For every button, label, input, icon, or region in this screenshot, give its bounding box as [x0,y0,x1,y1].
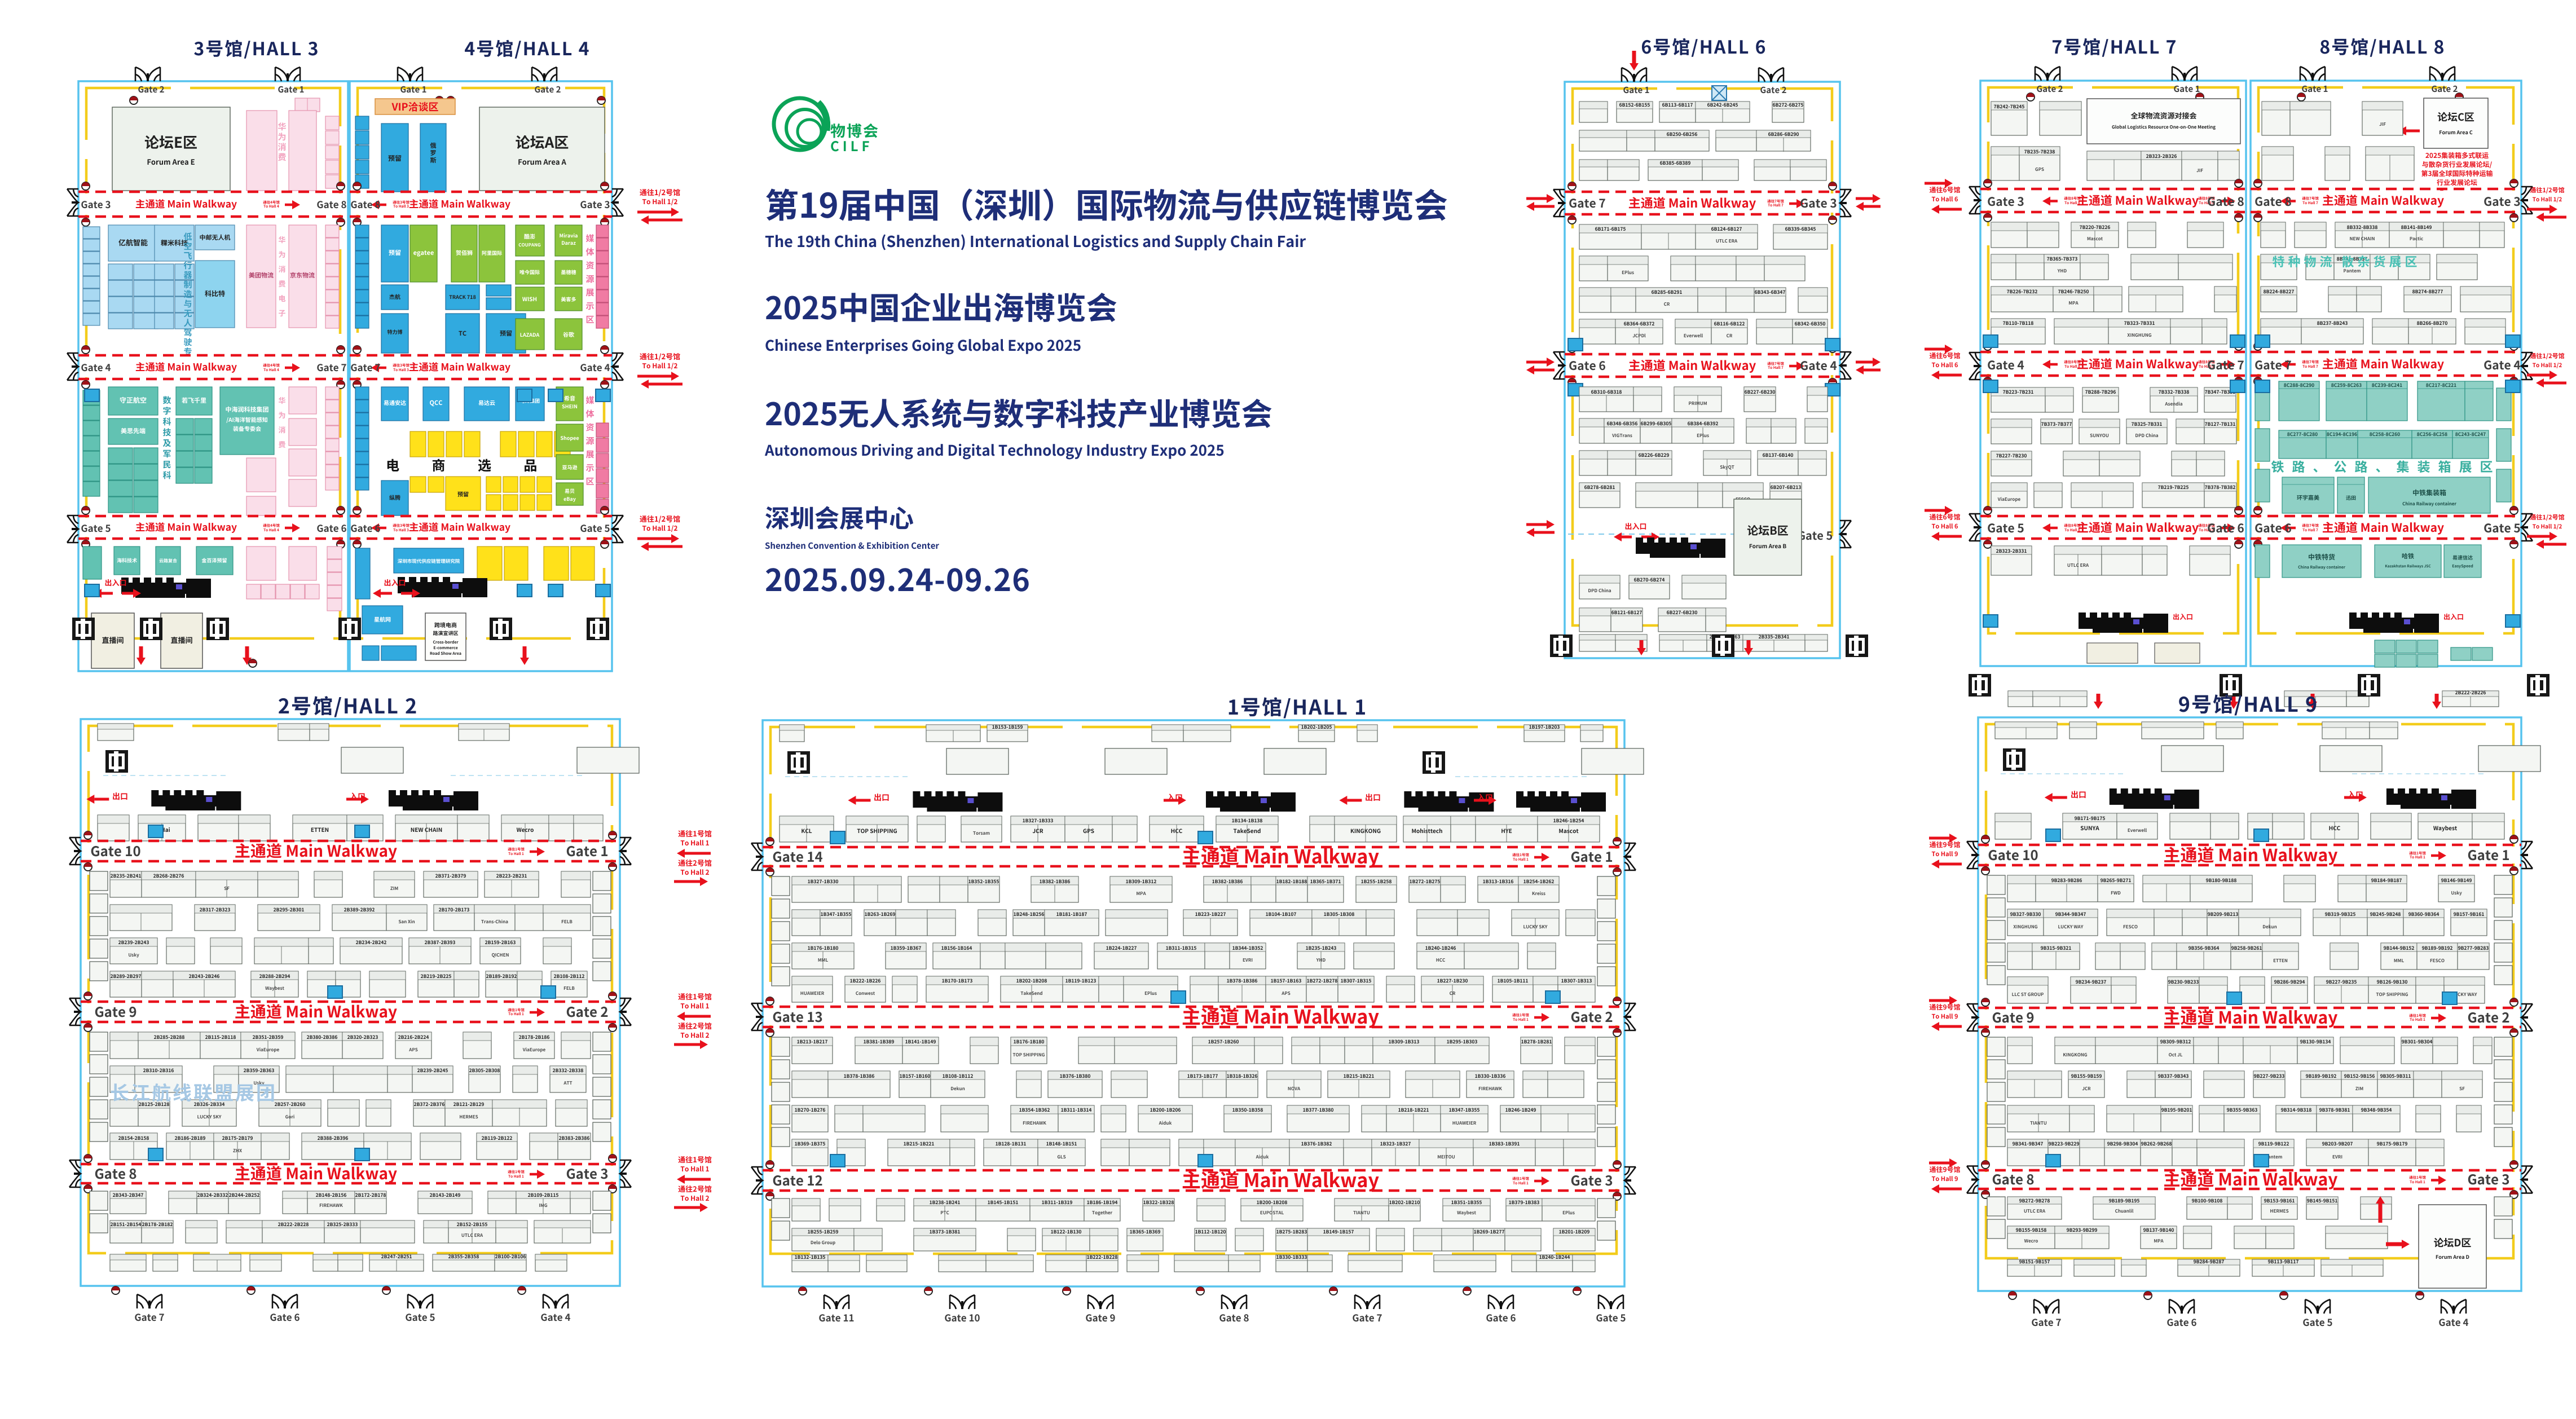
svg-text:论坛D区: 论坛D区 [2434,1235,2472,1250]
svg-text:出入口: 出入口 [1624,521,1646,531]
svg-text:TOP SHIPPING: TOP SHIPPING [1012,1052,1045,1058]
svg-text:6B121-6B127: 6B121-6B127 [1611,609,1643,616]
svg-text:1B330-1B333: 1B330-1B333 [1276,1254,1307,1261]
svg-text:2B151-2B154: 2B151-2B154 [111,1221,142,1228]
svg-text:与散杂货行业发展论坛/: 与散杂货行业发展论坛/ [2422,160,2493,169]
svg-text:7B325-7B331: 7B325-7B331 [2132,421,2163,428]
svg-text:出入口: 出入口 [2173,612,2193,622]
svg-text:1B197-1B203: 1B197-1B203 [1529,724,1560,730]
svg-text:Gate 8: Gate 8 [2254,193,2292,210]
svg-text:1B227-1B230: 1B227-1B230 [1437,977,1468,984]
svg-text:Gate 5: Gate 5 [1987,519,2024,536]
svg-text:跨境电商: 跨境电商 [434,620,457,629]
svg-text:1B309-1B313: 1B309-1B313 [1389,1038,1420,1045]
svg-text:铁路、公路、集装箱展区: 铁路、公路、集装箱展区 [2271,456,2501,475]
svg-text:Shopee: Shopee [560,434,579,442]
svg-text:egatee: egatee [413,248,434,257]
svg-text:7B110-7B118: 7B110-7B118 [2003,320,2034,327]
svg-text:8C258-8C260: 8C258-8C260 [2370,431,2400,438]
svg-text:6B137-6B140: 6B137-6B140 [1763,452,1794,459]
svg-text:深圳会展中心: 深圳会展中心 [765,499,914,535]
svg-text:9B153-9B161: 9B153-9B161 [2264,1197,2295,1204]
svg-text:1B254-1B262: 1B254-1B262 [1523,878,1555,885]
svg-text:9B265-9B271: 9B265-9B271 [2101,877,2132,884]
svg-text:主通道 Main Walkway: 主通道 Main Walkway [135,197,237,211]
svg-text:2B383-2B386: 2B383-2B386 [559,1135,590,1142]
svg-text:迅田: 迅田 [2346,494,2356,501]
svg-text:9B319-9B325: 9B319-9B325 [2325,911,2356,918]
svg-text:1B270-1B276: 1B270-1B276 [795,1107,826,1113]
svg-text:7B332-7B338: 7B332-7B338 [2159,389,2190,395]
svg-text:2B143-2B149: 2B143-2B149 [430,1192,461,1198]
svg-text:通往9号馆: 通往9号馆 [1929,1165,1960,1174]
svg-text:To Hall 2: To Hall 2 [680,1193,709,1203]
svg-text:1B215-1B221: 1B215-1B221 [1344,1073,1375,1079]
svg-text:1B381-1B389: 1B381-1B389 [864,1038,895,1045]
svg-text:1B327-1B333: 1B327-1B333 [1023,817,1054,824]
svg-text:FELB: FELB [561,919,573,925]
svg-text:E-commerce: E-commerce [433,645,457,651]
svg-text:China Railway container: China Railway container [2402,501,2456,507]
svg-text:1B311-1B314: 1B311-1B314 [1061,1107,1092,1113]
svg-text:俄罗斯: 俄罗斯 [430,141,437,165]
svg-text:Gate 3: Gate 3 [2467,1169,2509,1188]
svg-text:美团物流: 美团物流 [249,271,274,280]
svg-text:7B235-7B238: 7B235-7B238 [2024,148,2055,155]
svg-text:通往2号馆: 通往2号馆 [678,1020,712,1031]
svg-text:主通道 Main Walkway: 主通道 Main Walkway [2322,192,2444,209]
svg-text:SUNYA: SUNYA [2080,823,2099,832]
svg-text:6B207-6B213: 6B207-6B213 [1771,484,1802,491]
svg-text:To Hall 6: To Hall 6 [1931,522,1958,531]
svg-text:9B262-9B268: 9B262-9B268 [2141,1140,2172,1147]
svg-text:Chuanlil: Chuanlil [2115,1208,2134,1214]
svg-text:China Railway container: China Railway container [2298,565,2346,570]
svg-text:1B376-1B382: 1B376-1B382 [1301,1140,1332,1147]
svg-text:9B209-9B213: 9B209-9B213 [2208,911,2239,918]
svg-text:7B219-7B225: 7B219-7B225 [2158,484,2189,491]
svg-text:To Hall 4: To Hall 4 [263,367,279,372]
svg-text:Shenzhen Convention & Exhibiti: Shenzhen Convention & Exhibition Center [765,540,939,552]
svg-text:谷歌: 谷歌 [563,330,574,338]
svg-text:EPlus: EPlus [1622,270,1634,276]
svg-text:Gate 10: Gate 10 [90,840,140,860]
svg-text:Gate 3: Gate 3 [2483,193,2521,210]
svg-text:1B149-1B157: 1B149-1B157 [1323,1228,1354,1235]
svg-text:To Hall 1: To Hall 1 [2410,1016,2425,1022]
svg-text:1B383-1B391: 1B383-1B391 [1489,1140,1520,1147]
svg-text:To Hall 2: To Hall 2 [680,1030,709,1040]
svg-text:9B137-9B140: 9B137-9B140 [2143,1227,2174,1233]
svg-text:Gate 1: Gate 1 [278,83,305,95]
svg-text:Gate 8: Gate 8 [1219,1310,1249,1324]
svg-text:2B268-2B276: 2B268-2B276 [153,872,184,879]
svg-text:1B275-1B283: 1B275-1B283 [1276,1228,1307,1235]
svg-text:UTLC ERA: UTLC ERA [2024,1208,2046,1214]
svg-text:To Hall 1: To Hall 1 [680,1001,709,1011]
svg-text:2B355-2B358: 2B355-2B358 [448,1253,479,1260]
svg-text:Forum Area E: Forum Area E [147,156,195,167]
svg-text:通往1/2号馆: 通往1/2号馆 [2530,186,2564,195]
svg-text:1B141-1B149: 1B141-1B149 [905,1038,936,1045]
svg-text:预留: 预留 [500,329,512,338]
svg-text:To Hall 1/2: To Hall 1/2 [642,361,677,371]
svg-text:2B119-2B122: 2B119-2B122 [482,1135,513,1142]
svg-text:To Hall 3: To Hall 3 [393,367,409,372]
svg-text:1B202-1B210: 1B202-1B210 [1389,1199,1420,1206]
svg-text:EPlus: EPlus [1562,1210,1575,1216]
svg-text:预留: 预留 [389,248,401,257]
svg-text:To Hall 2: To Hall 2 [680,867,709,877]
svg-text:To Hall 1: To Hall 1 [680,838,709,848]
svg-text:9B223-9B229: 9B223-9B229 [2049,1140,2080,1147]
svg-text:1B309-1B312: 1B309-1B312 [1126,878,1157,885]
svg-text:路演宣讲区: 路演宣讲区 [433,629,458,637]
svg-text:MML: MML [2394,958,2405,964]
svg-text:1B246-1B254: 1B246-1B254 [1553,817,1584,824]
svg-text:2B310-2B316: 2B310-2B316 [143,1067,174,1074]
svg-text:To Hall 3: To Hall 3 [393,527,409,532]
svg-text:6B278-6B281: 6B278-6B281 [1584,484,1615,491]
svg-text:Gate 1: Gate 1 [2174,83,2200,95]
svg-text:9B189-9B192: 9B189-9B192 [2306,1073,2337,1079]
svg-text:2B175-2B179: 2B175-2B179 [222,1135,253,1142]
svg-text:直播间: 直播间 [102,634,124,645]
svg-text:1B307-1B313: 1B307-1B313 [1561,977,1592,984]
svg-text:Gate 5: Gate 5 [1798,527,1833,543]
svg-text:FELB: FELB [563,985,575,991]
svg-text:Gate 3: Gate 3 [81,197,111,211]
svg-text:UTLC ERA: UTLC ERA [1716,238,1738,244]
svg-text:2B324-2B332: 2B324-2B332 [197,1192,228,1198]
svg-text:6B152-6B155: 6B152-6B155 [1619,102,1650,108]
svg-text:eBay: eBay [563,495,576,503]
svg-text:1B128-1B131: 1B128-1B131 [996,1140,1027,1147]
svg-text:2B115-2B118: 2B115-2B118 [205,1034,236,1041]
svg-text:Gate 1: Gate 1 [566,840,608,860]
svg-text:9B327-9B330: 9B327-9B330 [2010,911,2041,918]
svg-text:Gate 1: Gate 1 [2302,83,2328,95]
svg-text:7B226-7B232: 7B226-7B232 [2007,288,2038,295]
svg-text:Gate 6: Gate 6 [1486,1310,1516,1324]
svg-text:Dekun: Dekun [950,1086,965,1092]
svg-text:To Hall 7: To Hall 7 [1768,202,1784,208]
svg-text:1B351-1B355: 1B351-1B355 [1451,1199,1482,1206]
svg-text:To Hall 8: To Hall 8 [2064,200,2080,205]
svg-text:The 19th China (Shenzhen) Inte: The 19th China (Shenzhen) International … [765,230,1306,252]
svg-text:2B148-2B156: 2B148-2B156 [316,1192,347,1198]
svg-text:San Xin: San Xin [398,919,415,925]
svg-text:Gate 2: Gate 2 [138,83,165,95]
svg-text:通往2号馆: 通往2号馆 [678,1183,712,1194]
svg-text:6B227-6B230: 6B227-6B230 [1745,389,1776,395]
svg-text:长江航线联盟展团: 长江航线联盟展团 [110,1078,277,1105]
svg-text:HERMES: HERMES [459,1114,478,1120]
svg-text:Road Show Area: Road Show Area [430,651,461,656]
svg-text:6B270-6B274: 6B270-6B274 [1634,576,1665,583]
svg-text:9B258-9B261: 9B258-9B261 [2231,945,2262,951]
svg-text:COUPANG: COUPANG [518,242,541,248]
svg-text:HUAWEIER: HUAWEIER [1452,1120,1477,1126]
svg-text:主通道 Main Walkway: 主通道 Main Walkway [2077,192,2199,209]
svg-text:6B384-6B392: 6B384-6B392 [1688,420,1719,427]
svg-text:9B144-9B152: 9B144-9B152 [2384,945,2415,951]
svg-text:7B220-7B226: 7B220-7B226 [2080,224,2111,231]
svg-text:通往9号馆: 通往9号馆 [1929,1002,1960,1012]
svg-text:主通道 Main Walkway: 主通道 Main Walkway [2077,355,2199,372]
svg-text:Usky: Usky [2451,890,2462,896]
svg-text:1B327-1B330: 1B327-1B330 [808,878,839,885]
svg-text:9B283-9B286: 9B283-9B286 [2051,877,2082,884]
svg-text:To Hall 7: To Hall 7 [2302,200,2318,205]
svg-text:ZIM: ZIM [2355,1086,2364,1092]
svg-text:主通道 Main Walkway: 主通道 Main Walkway [2164,1166,2338,1191]
svg-text:Gate 3: Gate 3 [580,197,610,211]
svg-text:Conwest: Conwest [856,990,875,997]
svg-text:Forum Area A: Forum Area A [518,156,566,167]
svg-text:通往1号馆: 通往1号馆 [678,1154,712,1165]
svg-text:To Hall 1: To Hall 1 [508,1173,524,1179]
svg-text:1B365-1B371: 1B365-1B371 [1310,878,1341,885]
svg-text:Aiduk: Aiduk [1256,1154,1269,1160]
svg-text:1B235-1B243: 1B235-1B243 [1306,945,1337,951]
svg-text:1B263-1B269: 1B263-1B269 [865,911,896,918]
svg-text:全球物流资源对接会: 全球物流资源对接会 [2130,110,2196,121]
svg-text:出入口: 出入口 [2443,612,2464,622]
svg-text:1B112-1B120: 1B112-1B120 [1195,1228,1226,1235]
svg-text:主通道 Main Walkway: 主通道 Main Walkway [2322,519,2444,536]
svg-text:JCR: JCR [2082,1086,2091,1092]
svg-text:2B108-2B112: 2B108-2B112 [554,973,585,980]
svg-text:WISH: WISH [522,294,537,303]
svg-text:论坛E区: 论坛E区 [144,131,197,152]
svg-text:Gate 3: Gate 3 [1570,1170,1613,1189]
svg-text:7B373-7B377: 7B373-7B377 [2041,421,2072,428]
svg-text:6B113-6B117: 6B113-6B117 [1662,102,1693,108]
svg-text:2B317-2B323: 2B317-2B323 [200,906,231,913]
svg-text:Gate 4: Gate 4 [2438,1315,2468,1329]
svg-text:To Hall 1/2: To Hall 1/2 [2533,360,2562,369]
svg-text:9B119-9B122: 9B119-9B122 [2258,1140,2289,1147]
svg-text:1B134-1B138: 1B134-1B138 [1232,817,1263,824]
svg-text:1B202-1B205: 1B202-1B205 [1301,724,1332,730]
svg-text:To Hall 9: To Hall 9 [1931,1174,1958,1183]
svg-text:1B373-1B381: 1B373-1B381 [930,1228,961,1235]
svg-text:To Hall 4: To Hall 4 [263,527,279,532]
svg-text:To Hall 9: To Hall 9 [1931,1012,1958,1021]
svg-text:6B348-6B356: 6B348-6B356 [1607,420,1638,427]
svg-text:主通道 Main Walkway: 主通道 Main Walkway [235,839,397,862]
svg-text:To Hall 8: To Hall 8 [2064,363,2080,369]
svg-text:9B284-9B287: 9B284-9B287 [2194,1258,2225,1265]
svg-text:Gate 4: Gate 4 [81,360,111,374]
svg-text:低空飞行器制造与无人驾驶专区: 低空飞行器制造与无人驾驶专区 [183,231,192,367]
svg-text:LUCKY WAY: LUCKY WAY [2058,924,2084,930]
svg-text:美客多: 美客多 [561,296,576,303]
svg-text:易贝: 易贝 [565,487,575,495]
svg-text:EPlus: EPlus [1144,990,1157,997]
svg-text:2B247-2B251: 2B247-2B251 [381,1253,412,1260]
svg-text:主通道 Main Walkway: 主通道 Main Walkway [409,360,510,374]
svg-text:通往9号馆: 通往9号馆 [1929,840,1960,849]
svg-text:媒体资源展示区: 媒体资源展示区 [585,232,594,325]
svg-text:9B184-9B187: 9B184-9B187 [2371,877,2402,884]
svg-text:Gate 6: Gate 6 [350,521,380,535]
svg-text:9B155-9B158: 9B155-9B158 [2016,1227,2047,1233]
svg-text:9B301-9B304: 9B301-9B304 [2402,1038,2433,1045]
svg-text:DPD China: DPD China [2135,433,2159,439]
svg-text:Gate 7: Gate 7 [2031,1315,2061,1329]
svg-text:Miravia: Miravia [560,232,578,239]
svg-text:1B330-1B336: 1B330-1B336 [1475,1073,1506,1079]
svg-text:/AI海洋智能感知: /AI海洋智能感知 [226,415,268,424]
svg-text:CILF: CILF [830,135,873,155]
svg-text:1B108-1B112: 1B108-1B112 [943,1073,974,1079]
svg-text:Gate 5: Gate 5 [1596,1310,1626,1324]
svg-text:1B176-1B180: 1B176-1B180 [808,945,839,951]
svg-text:Gate 2: Gate 2 [1570,1006,1613,1026]
svg-text:To Hall 1: To Hall 1 [2410,854,2425,860]
svg-text:6B272-6B275: 6B272-6B275 [1773,102,1804,108]
svg-text:京东物流: 京东物流 [290,271,315,280]
svg-text:Usky: Usky [128,952,139,958]
svg-text:VIGTrans: VIGTrans [1611,433,1632,439]
svg-text:主通道 Main Walkway: 主通道 Main Walkway [1182,1165,1380,1193]
svg-text:1B311-1B315: 1B311-1B315 [1166,945,1197,951]
svg-text:6B385-6B389: 6B385-6B389 [1660,160,1691,166]
svg-text:Gate 12: Gate 12 [772,1170,822,1189]
svg-text:7B242-7B245: 7B242-7B245 [1994,103,2025,110]
svg-text:Everwell: Everwell [1684,333,1703,339]
svg-text:Forum Area B: Forum Area B [1749,541,1787,550]
svg-text:XINGHUNG: XINGHUNG [2013,924,2037,930]
svg-text:8B266-8B270: 8B266-8B270 [2417,320,2448,327]
svg-text:1B218-1B221: 1B218-1B221 [1398,1107,1429,1113]
svg-text:6B286-6B290: 6B286-6B290 [1768,131,1799,138]
svg-text:1B278-1B281: 1B278-1B281 [1521,1038,1552,1045]
svg-text:1B181-1B187: 1B181-1B187 [1056,911,1087,918]
svg-text:1号馆/HALL 1: 1号馆/HALL 1 [1227,691,1368,721]
svg-text:杰航: 杰航 [389,292,400,301]
svg-text:CR: CR [1727,333,1733,339]
svg-text:JIF: JIF [2379,121,2386,127]
svg-text:2B172-2B178: 2B172-2B178 [355,1192,386,1198]
svg-text:FESCO: FESCO [2430,958,2445,964]
svg-text:1B305-1B308: 1B305-1B308 [1324,911,1355,918]
svg-text:9B337-9B343: 9B337-9B343 [2158,1073,2189,1079]
svg-text:Gate 1: Gate 1 [400,83,427,95]
svg-text:媒体资源展示区: 媒体资源展示区 [585,394,594,487]
svg-text:2B332-2B338: 2B332-2B338 [553,1067,584,1074]
svg-text:Gate 3: Gate 3 [1987,193,2024,210]
svg-text:9B227-9B235: 9B227-9B235 [2326,979,2357,985]
svg-text:6B226-6B229: 6B226-6B229 [1639,452,1670,459]
svg-text:2B239-2B243: 2B239-2B243 [118,939,149,946]
svg-text:Trans-China: Trans-China [481,919,508,925]
svg-text:1B307-1B315: 1B307-1B315 [1341,977,1372,984]
svg-text:EVRI: EVRI [2332,1154,2342,1160]
svg-text:9B293-9B299: 9B293-9B299 [2067,1227,2098,1233]
svg-text:8C243-8C247: 8C243-8C247 [2455,431,2486,438]
svg-text:2B222-2B228: 2B222-2B228 [278,1221,309,1228]
svg-text:1B122-1B130: 1B122-1B130 [1051,1228,1082,1235]
svg-text:9B227-9B233: 9B227-9B233 [2254,1073,2285,1079]
svg-text:1B378-1B386: 1B378-1B386 [844,1073,875,1079]
svg-text:6B242-6B245: 6B242-6B245 [1707,102,1738,108]
svg-text:1B170-1B173: 1B170-1B173 [942,977,973,984]
svg-text:7B227-7B230: 7B227-7B230 [1996,452,2027,459]
svg-text:中铁特货: 中铁特货 [2308,552,2335,562]
svg-text:主通道 Main Walkway: 主通道 Main Walkway [135,520,237,534]
svg-text:2B159-2B163: 2B159-2B163 [485,939,516,946]
svg-text:1B347-1B355: 1B347-1B355 [1449,1107,1480,1113]
svg-text:To Hall 1: To Hall 1 [1513,1180,1529,1186]
svg-text:9B195-9B201: 9B195-9B201 [2161,1107,2192,1113]
svg-text:Delo Group: Delo Group [811,1240,835,1246]
svg-text:Cross-border: Cross-border [433,640,459,645]
svg-text:6B364-6B372: 6B364-6B372 [1624,320,1655,327]
svg-text:8C259-8C263: 8C259-8C263 [2331,382,2362,389]
svg-text:8B141-8B149: 8B141-8B149 [2401,224,2432,231]
svg-text:UTLC ERA: UTLC ERA [461,1232,483,1239]
svg-text:2号馆/HALL 2: 2号馆/HALL 2 [278,690,419,720]
svg-text:2B243-2B246: 2B243-2B246 [189,973,220,980]
svg-text:主通道 Main Walkway: 主通道 Main Walkway [2077,519,2199,536]
svg-text:通往1号馆: 通往1号馆 [678,828,712,839]
svg-text:Kazakhstan Railways JSC: Kazakhstan Railways JSC [2385,563,2431,569]
svg-text:华为消费: 华为消费 [278,121,286,163]
svg-text:1B104-1B107: 1B104-1B107 [1266,911,1297,918]
svg-text:海科技术: 海科技术 [117,557,137,564]
svg-text:To Hall 7: To Hall 7 [1768,364,1784,370]
svg-text:2B219-2B225: 2B219-2B225 [421,973,452,980]
svg-text:1B318-1B326: 1B318-1B326 [1227,1073,1258,1079]
svg-text:1B347-1B355: 1B347-1B355 [821,911,852,918]
svg-text:7B246-7B250: 7B246-7B250 [2058,288,2089,295]
svg-text:Gate 8: Gate 8 [2207,193,2244,210]
svg-text:9B298-9B304: 9B298-9B304 [2107,1140,2138,1147]
svg-text:1B255-1B259: 1B255-1B259 [808,1228,839,1235]
svg-text:Gate 8: Gate 8 [94,1163,136,1183]
svg-text:Gate 2: Gate 2 [2432,83,2458,95]
svg-text:Gate 7: Gate 7 [350,360,380,374]
svg-text:ViaEurope: ViaEurope [1997,496,2021,503]
svg-text:6B310-6B318: 6B310-6B318 [1591,389,1622,395]
svg-text:出入口: 出入口 [384,577,406,588]
svg-text:1B145-1B151: 1B145-1B151 [988,1199,1019,1206]
svg-text:主通道 Main Walkway: 主通道 Main Walkway [1628,356,1756,374]
svg-text:ZIM: ZIM [390,885,399,892]
svg-text:预留: 预留 [388,153,402,163]
svg-text:2B216-2B224: 2B216-2B224 [398,1034,429,1041]
svg-text:2B121-2B129: 2B121-2B129 [453,1101,485,1108]
svg-text:9B230-9B233: 9B230-9B233 [2168,979,2199,985]
svg-text:FWD: FWD [2111,890,2121,896]
svg-text:通往1/2号馆: 通往1/2号馆 [2530,351,2564,360]
svg-text:6B116-6B122: 6B116-6B122 [1714,320,1745,327]
svg-text:9B305-9B311: 9B305-9B311 [2380,1073,2411,1079]
svg-text:2025集装箱多式联运: 2025集装箱多式联运 [2425,151,2489,160]
svg-text:6B250-6B256: 6B250-6B256 [1667,131,1698,138]
svg-text:6号馆/HALL 6: 6号馆/HALL 6 [1641,33,1767,59]
svg-text:通往1/2号馆: 通往1/2号馆 [640,513,680,524]
svg-text:7B323-7B331: 7B323-7B331 [2124,320,2155,327]
svg-text:唯今国际: 唯今国际 [519,268,540,276]
svg-text:9B152-9B156: 9B152-9B156 [2344,1073,2375,1079]
svg-text:1B272-1B275: 1B272-1B275 [1410,878,1441,885]
svg-text:LLC ST GROUP: LLC ST GROUP [2012,991,2044,998]
svg-text:亚马逊: 亚马逊 [562,464,577,471]
